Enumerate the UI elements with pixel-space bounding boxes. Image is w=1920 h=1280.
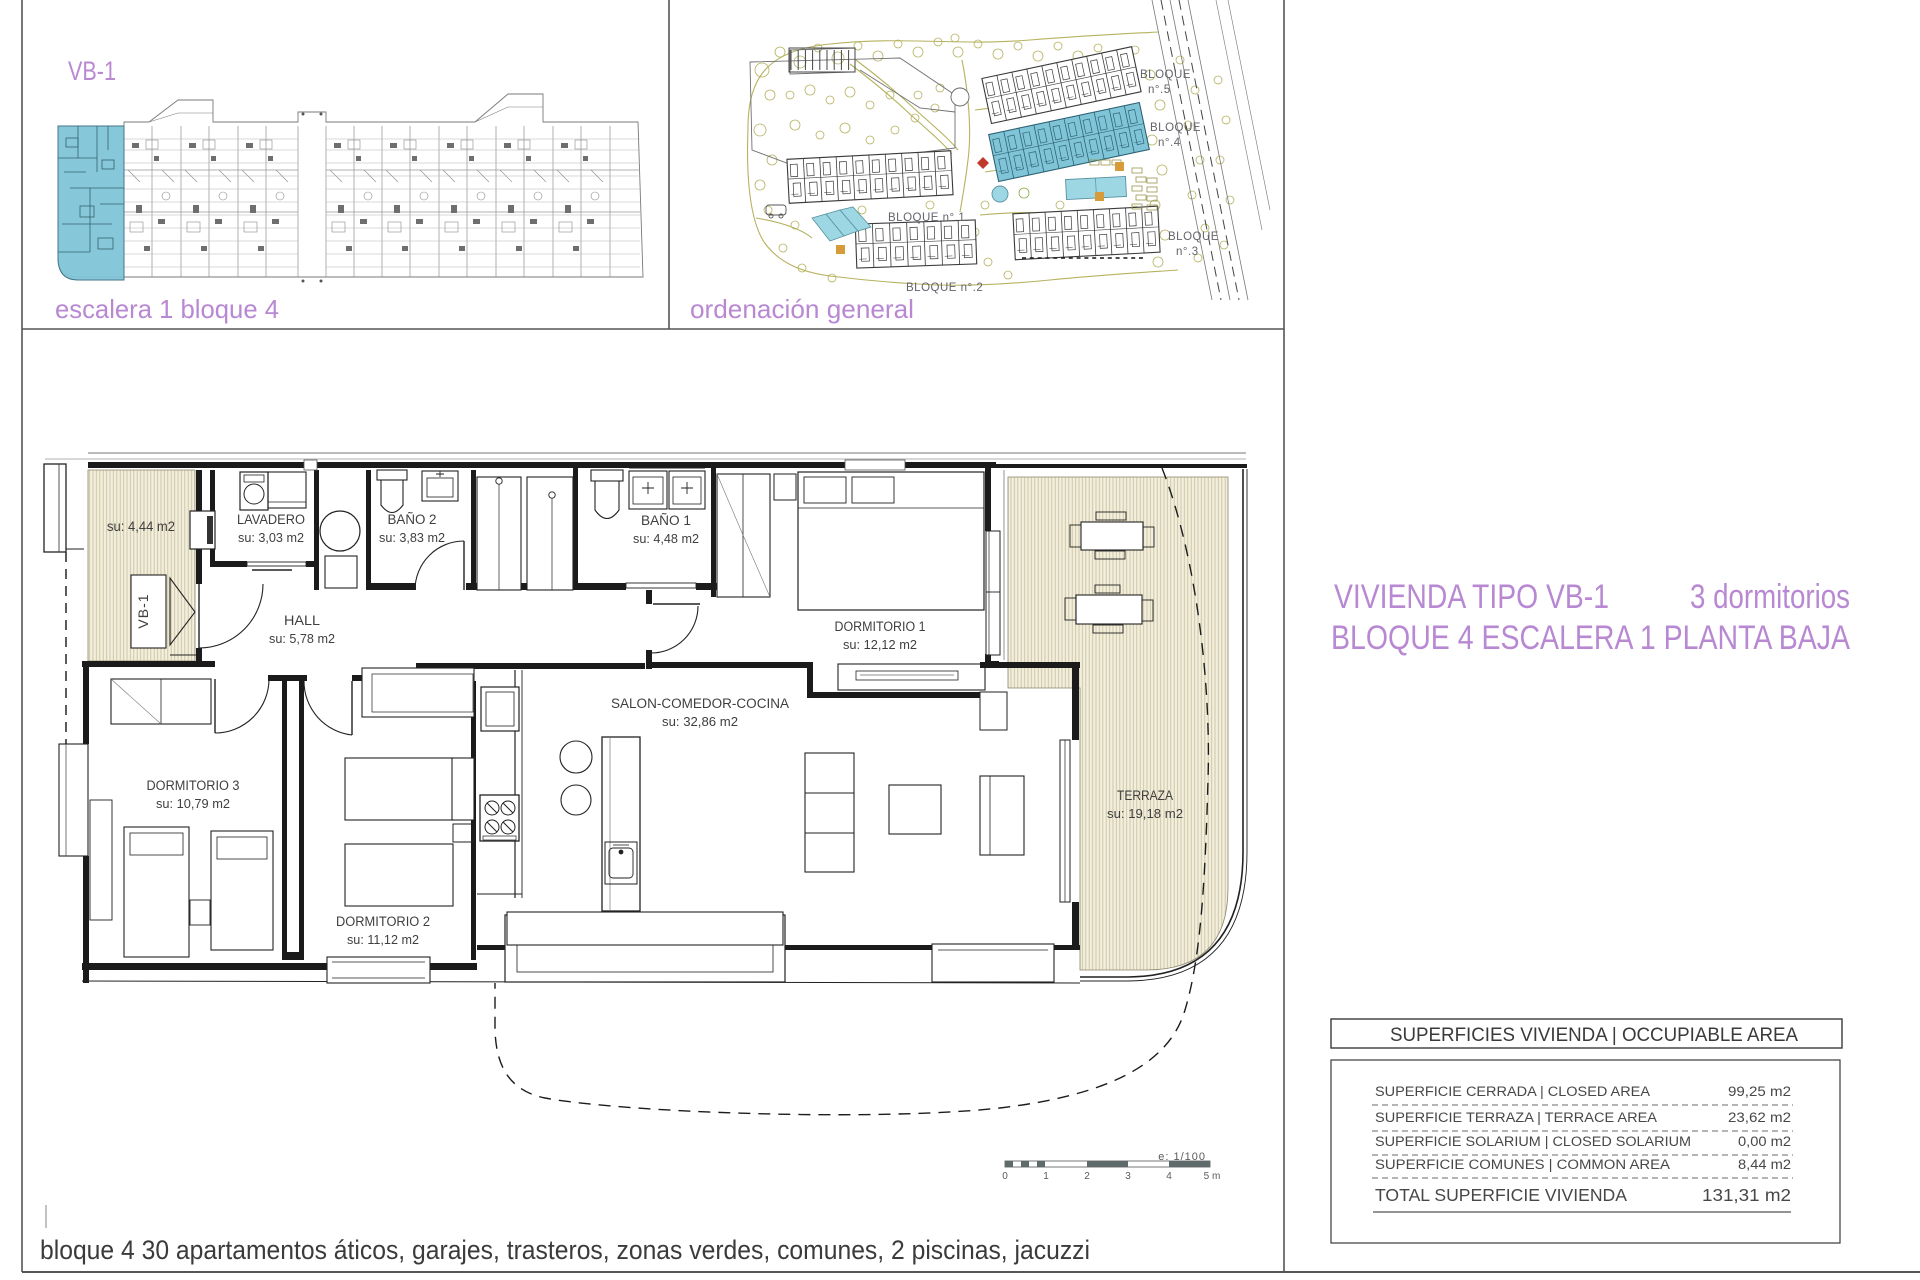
svg-text:su: 19,18 m2: su: 19,18 m2 xyxy=(1107,806,1183,821)
svg-text:ordenación general: ordenación general xyxy=(690,294,914,324)
svg-text:VB-1: VB-1 xyxy=(68,56,116,86)
svg-text:SALON-COMEDOR-COCINA: SALON-COMEDOR-COCINA xyxy=(611,696,789,711)
svg-text:2: 2 xyxy=(1084,1171,1090,1182)
svg-text:HALL: HALL xyxy=(284,613,321,628)
svg-text:n°.3: n°.3 xyxy=(1176,246,1199,258)
svg-text:su: 3,03 m2: su: 3,03 m2 xyxy=(238,530,304,545)
svg-text:DORMITORIO 3: DORMITORIO 3 xyxy=(147,778,240,793)
svg-text:BLOQUE n°.2: BLOQUE n°.2 xyxy=(906,282,983,294)
svg-text:SUPERFICIE SOLARIUM | CLOSED S: SUPERFICIE SOLARIUM | CLOSED SOLARIUM xyxy=(1375,1134,1691,1149)
svg-text:VB-1: VB-1 xyxy=(135,593,151,628)
svg-text:SUPERFICIE TERRAZA | TERRACE: SUPERFICIE TERRAZA | TERRACE AREA xyxy=(1375,1110,1657,1125)
svg-text:23,62 m2: 23,62 m2 xyxy=(1728,1110,1791,1125)
svg-text:BLOQUE 4 ESCALERA 1 PLANTA B: BLOQUE 4 ESCALERA 1 PLANTA BAJA xyxy=(1331,619,1850,657)
svg-text:VIVIENDA TIPO VB-1: VIVIENDA TIPO VB-1 xyxy=(1334,578,1609,616)
svg-text:DORMITORIO 2: DORMITORIO 2 xyxy=(336,914,430,929)
svg-text:1: 1 xyxy=(1043,1171,1049,1182)
svg-text:su: 4,48 m2: su: 4,48 m2 xyxy=(633,531,699,546)
svg-text:LAVADERO: LAVADERO xyxy=(237,512,305,527)
svg-text:n°.5: n°.5 xyxy=(1148,84,1171,96)
svg-text:4: 4 xyxy=(1166,1171,1172,1182)
svg-text:BLOQUE: BLOQUE xyxy=(1140,69,1191,81)
svg-text:0,00 m2: 0,00 m2 xyxy=(1738,1134,1791,1149)
svg-text:SUPERFICIE COMUNES | COMMON AR: SUPERFICIE COMUNES | COMMON AREA xyxy=(1375,1157,1670,1172)
svg-text:su: 3,83 m2: su: 3,83 m2 xyxy=(379,530,445,545)
svg-text:8,44 m2: 8,44 m2 xyxy=(1738,1157,1791,1172)
svg-text:0: 0 xyxy=(1002,1171,1008,1182)
svg-text:TERRAZA: TERRAZA xyxy=(1117,788,1173,803)
svg-text:SUPERFICIES VIVIENDA | OCCUPIA: SUPERFICIES VIVIENDA | OCCUPIABLE AREA xyxy=(1390,1024,1798,1046)
svg-text:3 dormitorios: 3 dormitorios xyxy=(1690,578,1850,616)
svg-text:TOTAL SUPERFICIE VIVIENDA: TOTAL SUPERFICIE VIVIENDA xyxy=(1375,1185,1627,1205)
svg-text:SUPERFICIE CERRADA | CLOSED AR: SUPERFICIE CERRADA | CLOSED AREA xyxy=(1375,1084,1650,1099)
svg-text:BLOQUE: BLOQUE xyxy=(1168,231,1219,243)
svg-text:5 m: 5 m xyxy=(1204,1171,1221,1182)
svg-text:DORMITORIO 1: DORMITORIO 1 xyxy=(835,619,926,634)
svg-text:su: 5,78 m2: su: 5,78 m2 xyxy=(269,631,335,646)
svg-text:n°.4: n°.4 xyxy=(1158,137,1181,149)
svg-text:99,25 m2: 99,25 m2 xyxy=(1728,1084,1791,1099)
svg-text:su: 4,44 m2: su: 4,44 m2 xyxy=(107,519,175,534)
svg-text:BLOQUE n°.1: BLOQUE n°.1 xyxy=(888,212,965,224)
svg-text:BAÑO 1: BAÑO 1 xyxy=(641,513,691,528)
svg-text:su: 32,86 m2: su: 32,86 m2 xyxy=(662,714,738,729)
svg-text:su: 12,12 m2: su: 12,12 m2 xyxy=(843,637,917,652)
svg-text:BLOQUE: BLOQUE xyxy=(1150,122,1201,134)
svg-text:su: 10,79 m2: su: 10,79 m2 xyxy=(156,796,230,811)
svg-text:BAÑO 2: BAÑO 2 xyxy=(388,512,437,527)
svg-text:bloque 4 30 apartamentos ático: bloque 4 30 apartamentos áticos, garajes… xyxy=(40,1235,1090,1265)
svg-text:escalera 1 bloque 4: escalera 1 bloque 4 xyxy=(55,294,279,324)
svg-text:131,31 m2: 131,31 m2 xyxy=(1702,1185,1791,1205)
svg-text:su: 11,12 m2: su: 11,12 m2 xyxy=(347,932,419,947)
svg-text:3: 3 xyxy=(1125,1171,1131,1182)
